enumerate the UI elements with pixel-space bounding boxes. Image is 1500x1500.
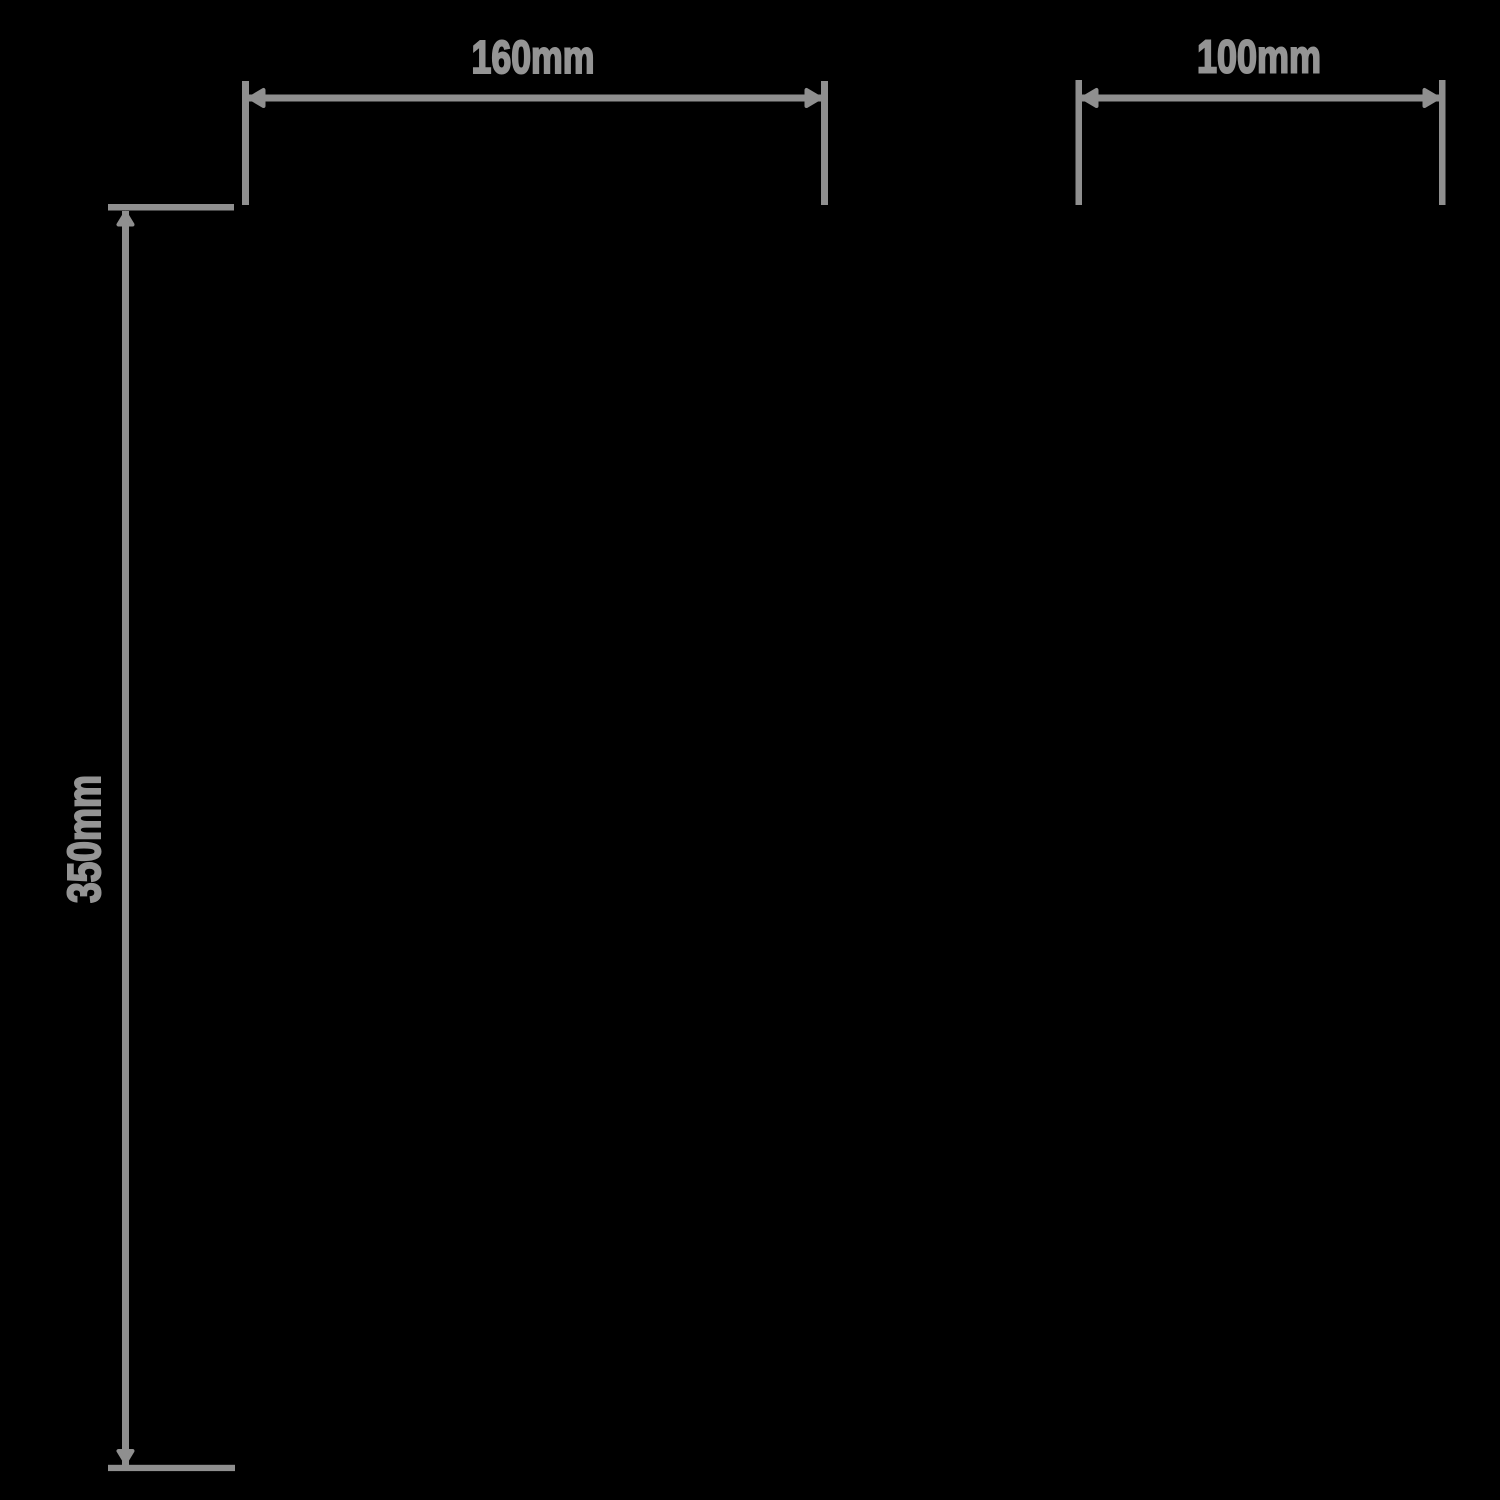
svg-text:160mm: 160mm [472,31,595,83]
svg-text:350mm: 350mm [58,775,110,903]
svg-text:100mm: 100mm [1197,31,1321,83]
